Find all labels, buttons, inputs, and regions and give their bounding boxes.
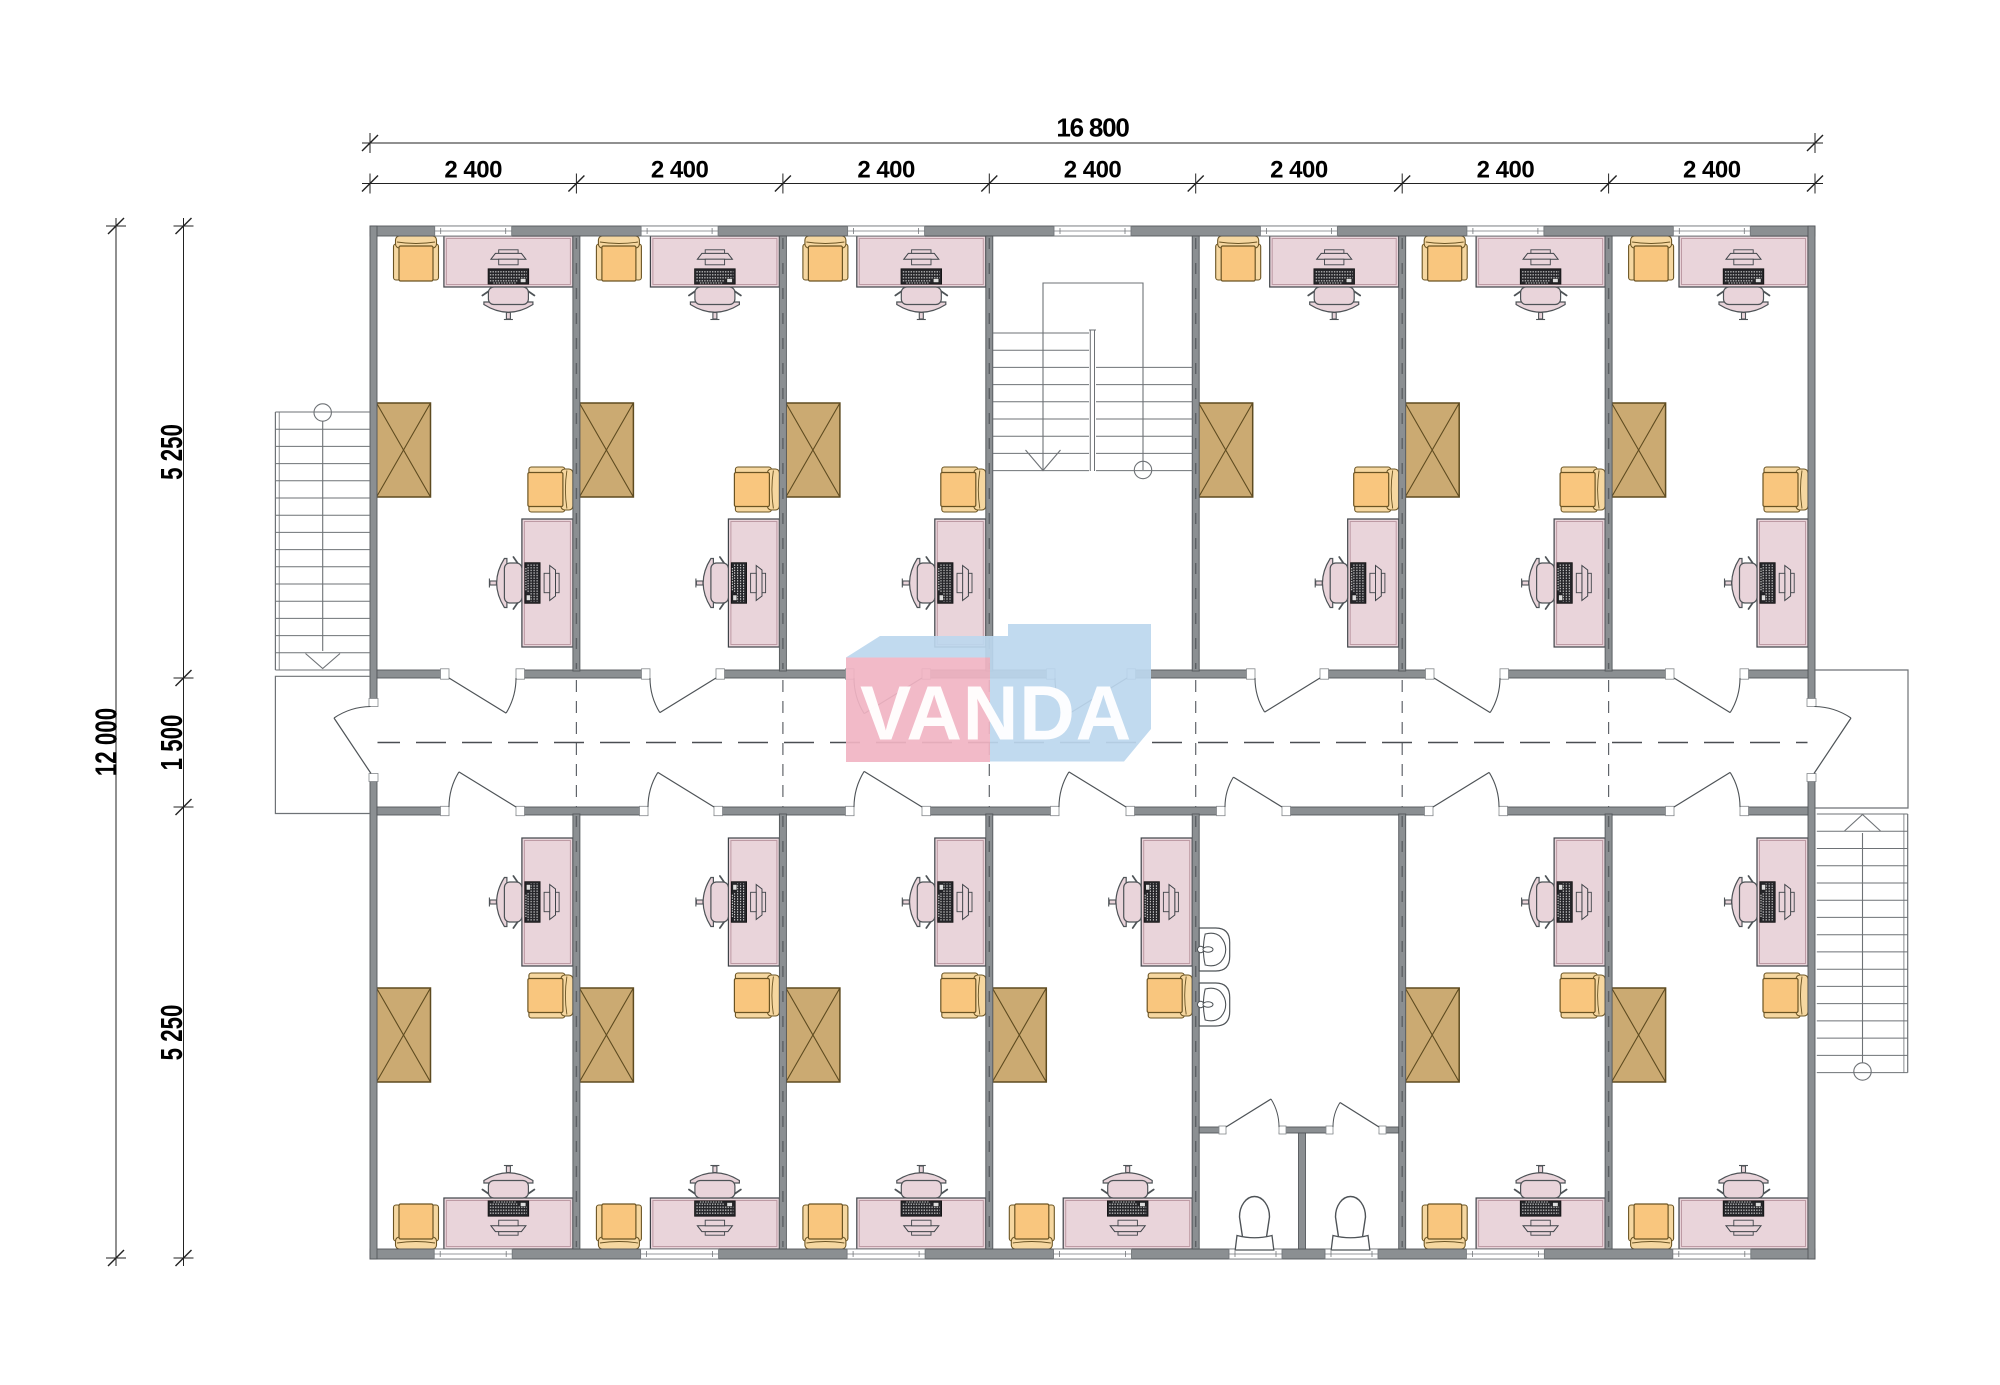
svg-text:5 250: 5 250 xyxy=(154,1005,188,1061)
svg-text:2 400: 2 400 xyxy=(444,157,502,184)
svg-text:VANDA: VANDA xyxy=(860,671,1132,757)
svg-text:1 500: 1 500 xyxy=(154,715,188,771)
svg-text:12 000: 12 000 xyxy=(89,708,123,776)
svg-text:2 400: 2 400 xyxy=(1683,157,1741,184)
svg-text:16 800: 16 800 xyxy=(1056,113,1129,143)
svg-text:2 400: 2 400 xyxy=(1477,157,1535,184)
svg-text:5 250: 5 250 xyxy=(154,424,188,480)
svg-text:2 400: 2 400 xyxy=(1064,157,1122,184)
svg-text:2 400: 2 400 xyxy=(857,157,915,184)
svg-text:2 400: 2 400 xyxy=(651,157,709,184)
svg-text:2 400: 2 400 xyxy=(1270,157,1328,184)
